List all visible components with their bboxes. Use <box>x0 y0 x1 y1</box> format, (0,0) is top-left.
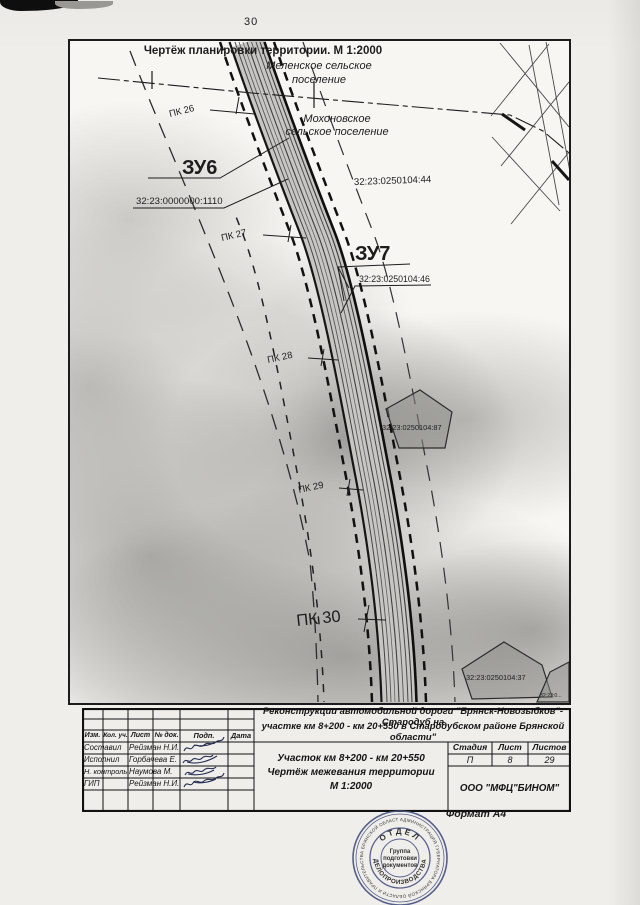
scan-artifact-smear <box>55 1 113 9</box>
settlement-top-line2: поселение <box>292 74 346 86</box>
sheet-header: Лист <box>492 742 528 754</box>
sheet-value: 8 <box>492 754 528 766</box>
parcel-label-lower: 32:23:0250104:37 <box>466 673 526 682</box>
settlement-bottom-line2: сельское поселение <box>285 126 388 138</box>
zu7-cadastral-label: 32:23:0250104:46 <box>359 274 430 284</box>
stamp-center-line3: документов <box>382 863 418 869</box>
company-name: ООО "МФЦ"БИНОМ" <box>448 766 571 812</box>
row-role-1: Исполнил <box>84 754 128 766</box>
row-role-0: Составил <box>84 742 128 754</box>
col-header-izm: Изм. <box>82 730 103 742</box>
parcel-label-upper: 32:23:0250104:87 <box>382 423 442 432</box>
crosshatch-area <box>491 42 569 224</box>
project-description-line2: участке км 8+200 - км 20+550 в Стародубс… <box>258 724 568 740</box>
settlement-bottom-line1: Мохоновское <box>303 113 370 125</box>
stamp-center-line1: Группа <box>390 849 411 855</box>
doc-scale: М 1:2000 <box>256 780 446 794</box>
signatures <box>183 737 224 787</box>
left-middash-boundary <box>172 42 324 702</box>
col-header-list: Лист <box>128 730 153 742</box>
col-header-podp: Подп. <box>180 730 228 742</box>
sheets-header: Листов <box>528 742 571 754</box>
parcel-label-corner: 32:23:0... <box>540 693 562 699</box>
right-cadastral-label: 32:23:0250104:44 <box>354 174 432 188</box>
sheets-value: 29 <box>528 754 571 766</box>
title-block: Изм. Кол. уч. Лист № док. Подп. Дата Сос… <box>82 708 571 812</box>
zu6-label: ЗУ6 <box>182 157 217 179</box>
parcel-pentagon-lower <box>462 642 552 699</box>
drawing-title: Чертёж планировки территории. М 1:2000 <box>144 45 382 57</box>
drawing-frame: 32:23:0250104:87 32:23:0250104:37 32:23:… <box>68 39 571 705</box>
col-header-kol: Кол. уч. <box>103 730 128 742</box>
row-role-2: Н. контроль <box>84 766 128 778</box>
row-name-3: Рейзман Н.И. <box>129 778 180 790</box>
stamp-center-line2: подготовки <box>383 856 417 862</box>
col-header-data: Дата <box>228 730 254 742</box>
doc-title-line2: Чертёж межевания территории <box>256 766 446 780</box>
stamp-dept-top: ОТДЕЛ <box>378 827 423 843</box>
row-name-0: Рейзман Н.И. <box>129 742 180 754</box>
parcel-pentagon-upper <box>386 390 452 448</box>
zu6-callout: ЗУ6 32:23:0000000:1110 <box>133 138 289 208</box>
zu6-cadastral-label: 32:23:0000000:1110 <box>136 196 223 207</box>
pk-marker-30: ПК 30 <box>296 607 342 630</box>
row-role-3: ГИП <box>84 778 128 790</box>
col-header-ndok: № док. <box>153 730 180 742</box>
scanned-page: { "page": { "number": "30", "format_labe… <box>0 0 640 905</box>
stage-header: Стадия <box>448 742 492 754</box>
zu7-label: ЗУ7 <box>355 243 390 265</box>
row-name-2: Наумова М. <box>129 766 180 778</box>
office-stamp: АДМИНИСТРАЦИЯ ГУБЕРНАТОРА БРЯНСКОЙ ОБЛАС… <box>345 806 455 905</box>
format-label: Формат А4 <box>446 808 506 820</box>
pk-marker-27: ПК 27 <box>220 227 247 243</box>
page-number: 30 <box>244 16 258 28</box>
settlement-top-line1: Меленское сельское <box>266 60 371 72</box>
row-name-1: Горбачева Е. <box>129 754 180 766</box>
site-plan-drawing: 32:23:0250104:87 32:23:0250104:37 32:23:… <box>70 41 569 703</box>
pk-marker-26: ПК 26 <box>168 103 195 120</box>
doc-title-line1: Участок км 8+200 - км 20+550 <box>256 752 446 766</box>
pk-marker-28: ПК 28 <box>266 350 293 366</box>
stage-value: П <box>448 754 492 766</box>
pk-marker-29: ПК 29 <box>297 480 324 496</box>
